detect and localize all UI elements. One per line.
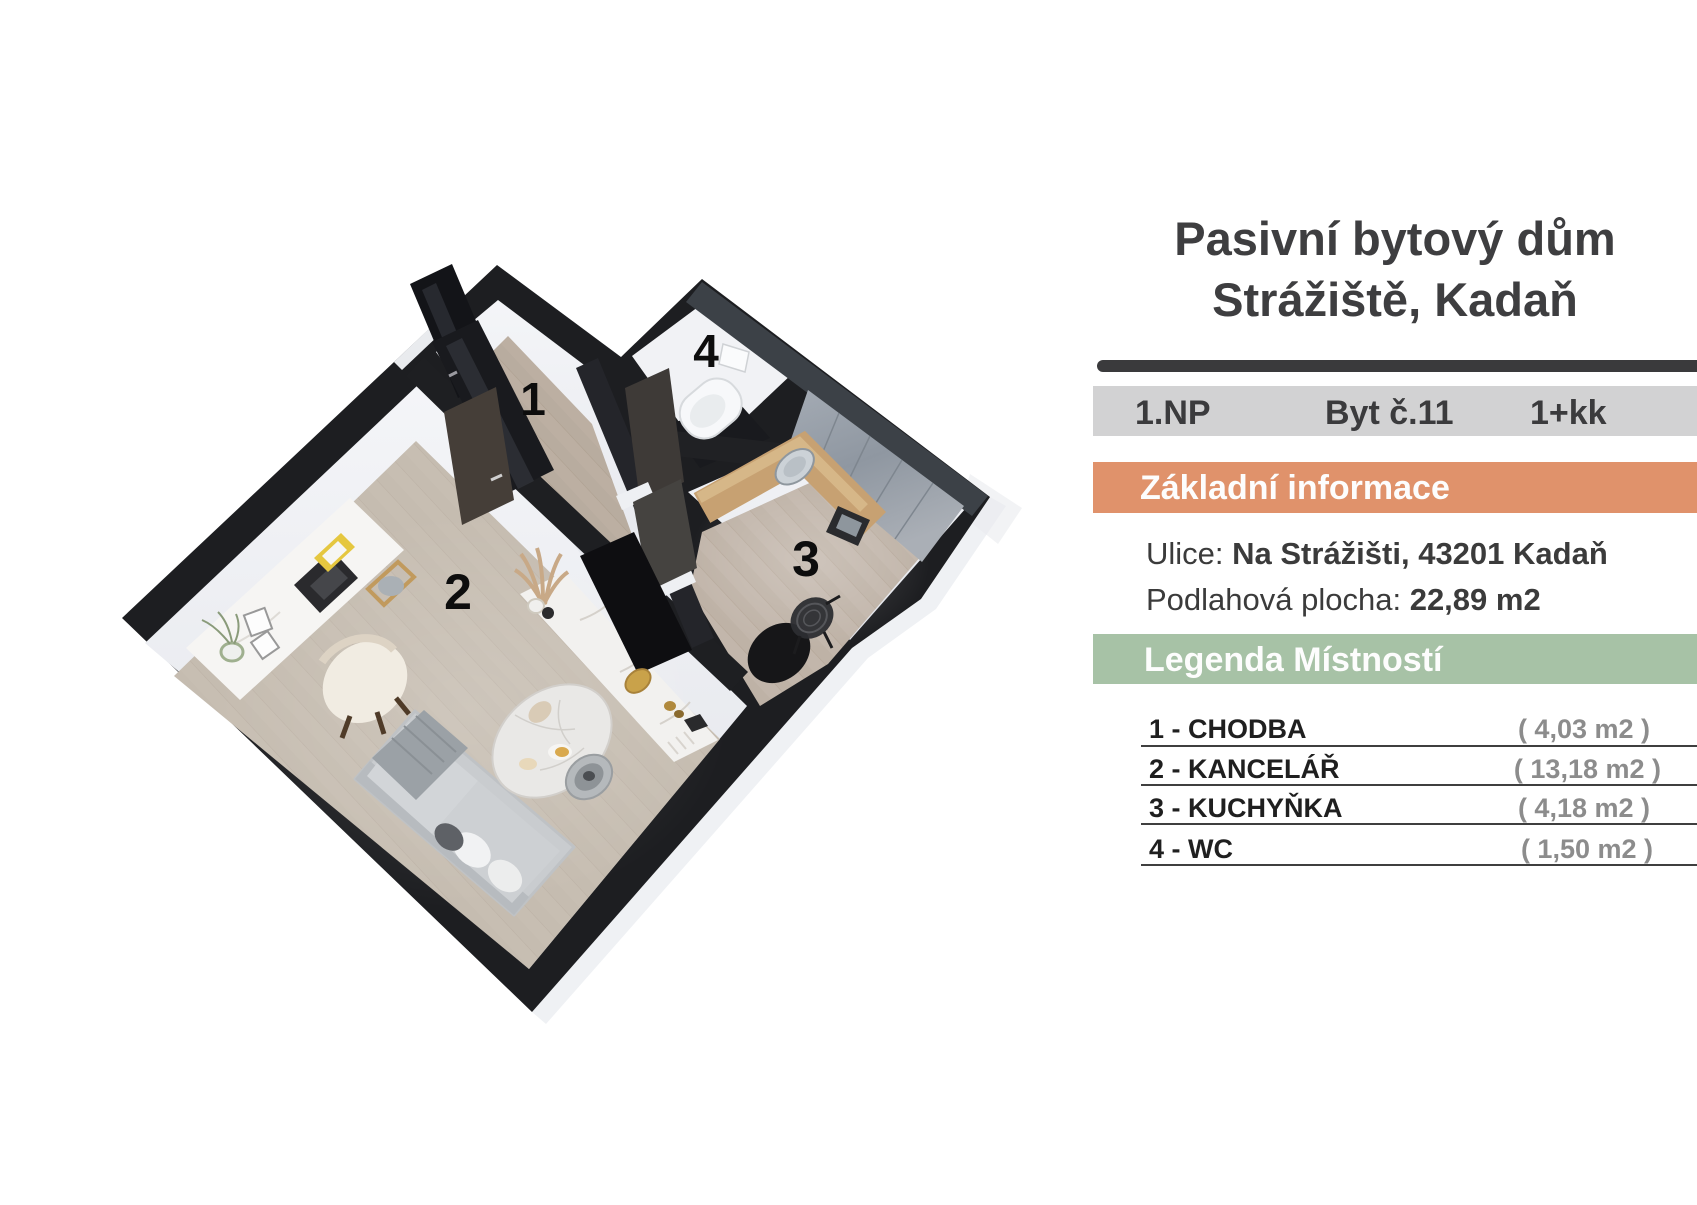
svg-text:2: 2 xyxy=(444,564,472,620)
svg-text:3: 3 xyxy=(792,531,820,587)
svg-text:4: 4 xyxy=(693,325,719,377)
svg-text:1: 1 xyxy=(520,373,546,425)
